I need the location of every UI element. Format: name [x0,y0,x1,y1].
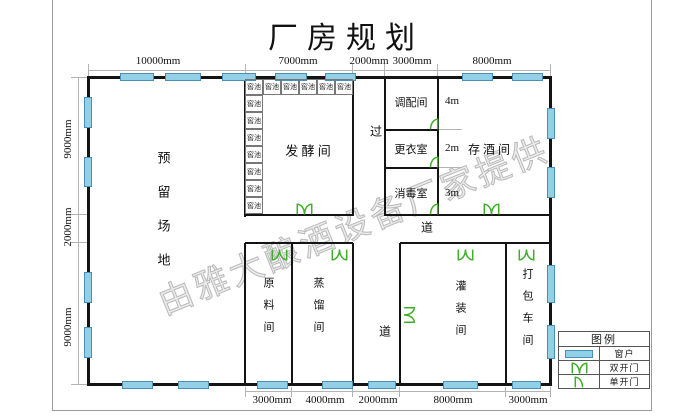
label-corridor-way-mid: 道 [421,219,433,236]
dimension-line [505,387,506,397]
legend-label-window: 窗户 [600,347,649,360]
fermentation-pit-cell: 窖池 [245,79,263,95]
legend-row-single-door: 单开门 [559,375,649,388]
window-marker [443,381,478,389]
fermentation-pit-cell: 窖池 [245,163,263,180]
fermentation-pit-cell: 窖池 [299,79,317,95]
dimension-line [88,64,89,76]
window-icon [565,350,593,358]
factory-plan-page: { "title": "厂房规划", "watermark": { "text"… [0,0,700,420]
window-marker [84,327,92,358]
fermentation-pit-cell: 窖池 [281,79,299,95]
window-marker [512,73,543,81]
legend-row-double-door: 双开门 [559,361,649,375]
label-corridor-way-bottom: 道 [379,323,391,340]
window-marker [165,73,201,81]
page-border [651,0,652,410]
legend-row-window: 窗户 [559,347,649,361]
dimension-label: 9000mm [62,307,74,346]
wall-segment [352,243,354,384]
legend-label-double-door: 双开门 [600,361,649,374]
fermentation-pit-cell: 窖池 [263,79,281,95]
dimension-label: 4000mm [305,394,344,406]
window-marker [120,73,154,81]
double-door-marker [518,244,535,262]
fermentation-pit-cell: 窖池 [245,112,263,129]
single-door-marker [429,155,439,173]
fermentation-pit-cell: 窖池 [245,146,263,163]
window-marker [84,272,92,303]
dimension-line [399,387,400,397]
label-room-filling: 灌装间 [452,280,468,346]
dimension-line [437,64,438,76]
page-border [52,410,652,411]
fermentation-pit-cell: 窖池 [245,95,263,112]
dimension-label: 8000mm [433,394,472,406]
fermentation-pit-cell: 窖池 [335,79,353,95]
window-marker [322,381,353,389]
double-door-marker [296,202,313,220]
double-door-marker [331,244,348,262]
label-room-wine-storage: 存 酒 间 [468,141,510,158]
label-room-distillation: 蒸馏间 [310,277,326,343]
page-border [52,0,53,410]
label-room-disinfection: 消毒室 [395,185,428,201]
window-marker [547,325,555,359]
legend-symbol-cell [559,361,600,374]
wall-segment [505,243,507,384]
wall-segment [291,243,293,384]
double-door-marker [271,244,288,262]
dimension-line [71,384,88,385]
label-room-packing: 打包车间 [519,268,535,356]
label-room-changing: 更衣室 [395,141,428,157]
window-marker [368,381,396,389]
window-marker [547,265,555,303]
double-door-marker [483,202,500,220]
dimension-label: 2000mm [358,394,397,406]
single-door-icon [574,375,584,388]
dimension-line [438,167,462,168]
dimension-label: 10000mm [136,55,181,67]
dimension-label: 3000mm [508,394,547,406]
single-door-marker [429,202,439,220]
dimension-line [438,129,462,130]
window-marker [84,157,92,187]
dimension-label: 8000mm [472,55,511,67]
label-room-raw-material: 原料间 [260,277,276,343]
dimension-line [550,64,551,76]
double-door-marker [457,244,474,262]
window-marker [178,381,209,389]
window-marker [84,97,92,128]
dimension-label: 2000mm [62,207,74,246]
window-marker [512,381,541,389]
single-door-marker [429,117,439,135]
dimension-line [78,77,79,385]
label-room-blending: 调配间 [395,94,428,110]
wall-segment [384,77,386,216]
fermentation-pit-cell: 窖池 [245,180,263,197]
dimension-line [71,77,88,78]
double-door-marker [399,307,417,324]
dimension-label: 3m [445,187,459,199]
label-corridor-pass: 过 [370,123,382,140]
wall-segment [437,77,439,216]
wall-segment [244,243,246,384]
fermentation-pit-cell: 窖池 [245,129,263,146]
dimension-line [550,387,551,397]
double-door-icon [571,361,588,374]
label-room-reserved-area: 预留场地 [154,151,173,287]
dimension-label: 9000mm [62,119,74,158]
dimension-label: 2m [445,142,459,154]
fermentation-pit-cell: 窖池 [317,79,335,95]
page-title: 厂房规划 [268,13,424,57]
wall-segment [88,383,551,386]
legend-symbol-cell [559,375,600,388]
legend-label-single-door: 单开门 [600,375,649,388]
fermentation-pit-cell: 窖池 [245,197,263,214]
window-marker [462,73,493,81]
dimension-label: 3000mm [252,394,291,406]
window-marker [257,381,288,389]
dimension-line [245,387,246,397]
legend-symbol-cell [559,347,600,360]
window-marker [547,108,555,139]
label-room-fermentation: 发 酵 间 [285,141,331,160]
dimension-line [88,70,551,71]
wall-segment [352,77,354,216]
window-marker [122,381,153,389]
window-marker [547,167,555,198]
legend-title: 图例 [559,332,649,347]
dimension-label: 4m [445,95,459,107]
legend: 图例 窗户 双开门 单开门 [558,331,650,389]
